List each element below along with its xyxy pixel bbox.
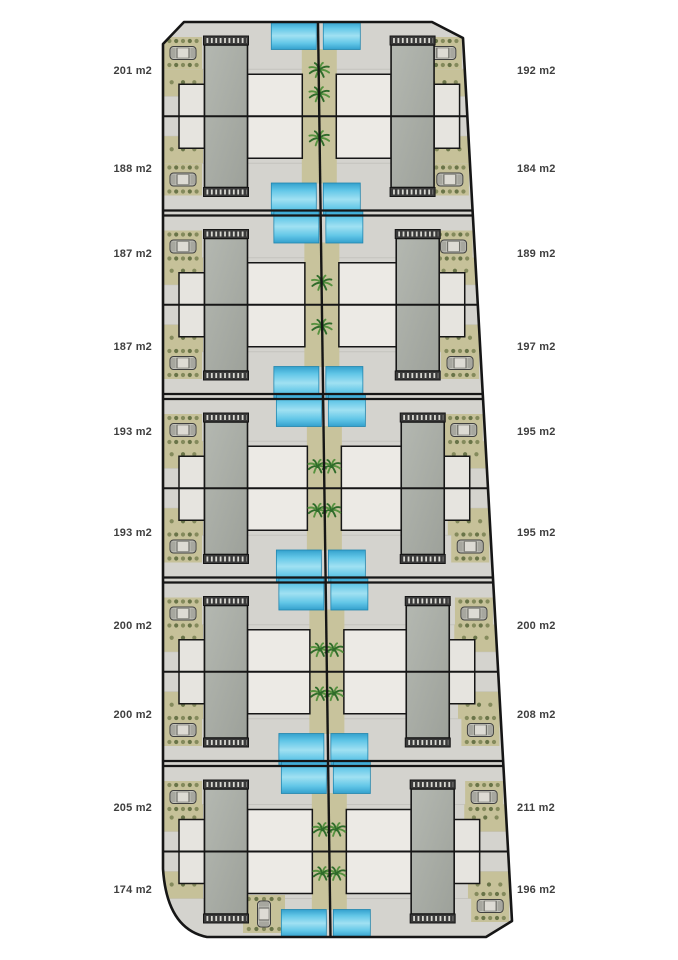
plant-tuft (455, 556, 459, 560)
plant-tuft (188, 556, 192, 560)
plant-tuft (195, 189, 199, 193)
plant-tuft (502, 892, 506, 896)
block-2 (150, 210, 525, 400)
plant-tuft (170, 815, 174, 819)
car-icon (170, 540, 196, 553)
car-icon (170, 173, 196, 186)
plant-tuft (451, 373, 455, 377)
parking-pad (164, 714, 202, 746)
area-label-left-9: 205 m2 (88, 801, 152, 815)
plant-tuft (455, 532, 459, 536)
plant-tuft (188, 165, 192, 169)
plant-tuft (167, 556, 171, 560)
car-icon (170, 424, 196, 437)
plant-tuft (485, 599, 489, 603)
plant-tuft (195, 556, 199, 560)
plant-tuft (188, 716, 192, 720)
plant-tuft (441, 189, 445, 193)
plant-tuft (188, 232, 192, 236)
plant-tuft (472, 373, 476, 377)
plant-tuft (167, 440, 171, 444)
area-label-right-8: 208 m2 (517, 708, 587, 722)
plant-tuft (170, 882, 174, 886)
plant-tuft (195, 532, 199, 536)
plant-tuft (195, 256, 199, 260)
plant-tuft (170, 519, 174, 523)
plant-tuft (167, 807, 171, 811)
plant-tuft (195, 599, 199, 603)
plant-tuft (475, 532, 479, 536)
plant-tuft (458, 349, 462, 353)
plant-tuft (174, 63, 178, 67)
plant-tuft (465, 599, 469, 603)
plant-tuft (485, 636, 489, 640)
plant-tuft (188, 740, 192, 744)
plant-tuft (262, 897, 266, 901)
plant-tuft (174, 807, 178, 811)
plant-tuft (181, 783, 185, 787)
plant-tuft (174, 349, 178, 353)
area-label-right-5: 195 m2 (517, 425, 587, 439)
plant-tuft (188, 189, 192, 193)
plant-tuft (167, 256, 171, 260)
plant-tuft (487, 882, 491, 886)
parking-pad (455, 598, 493, 630)
plant-tuft (195, 349, 199, 353)
car-icon (170, 607, 196, 620)
plant-tuft (474, 916, 478, 920)
plant-tuft (488, 892, 492, 896)
plant-tuft (485, 623, 489, 627)
car-icon (170, 240, 196, 253)
plant-tuft (496, 783, 500, 787)
plant-tuft (472, 716, 476, 720)
plant-tuft (247, 927, 251, 931)
plant-tuft (174, 556, 178, 560)
plant-tuft (195, 373, 199, 377)
plant-tuft (462, 440, 466, 444)
plant-tuft (472, 740, 476, 744)
plant-tuft (195, 63, 199, 67)
plant-tuft (174, 716, 178, 720)
plant-tuft (167, 416, 171, 420)
plant-tuft (482, 783, 486, 787)
parking-pad (445, 414, 483, 446)
plant-tuft (478, 740, 482, 744)
plant-tuft (472, 623, 476, 627)
plant-tuft (441, 63, 445, 67)
plant-tuft (494, 815, 498, 819)
parking-pad (431, 164, 469, 196)
plant-tuft (195, 39, 199, 43)
plant-tuft (482, 807, 486, 811)
plant-tuft (461, 189, 465, 193)
plant-tuft (167, 532, 171, 536)
area-label-left-10: 174 m2 (88, 883, 152, 897)
plant-tuft (188, 783, 192, 787)
plant-tuft (444, 349, 448, 353)
plant-tuft (441, 165, 445, 169)
area-label-right-7: 200 m2 (517, 619, 587, 633)
plant-tuft (458, 232, 462, 236)
area-label-right-6: 195 m2 (517, 526, 587, 540)
plant-tuft (482, 556, 486, 560)
area-label-right-3: 189 m2 (517, 247, 587, 261)
plant-tuft (174, 416, 178, 420)
plant-tuft (254, 927, 258, 931)
plant-tuft (170, 336, 174, 340)
plant-tuft (465, 716, 469, 720)
plant-tuft (455, 165, 459, 169)
area-label-left-7: 200 m2 (88, 619, 152, 633)
plant-tuft (485, 740, 489, 744)
plant-tuft (167, 783, 171, 787)
plant-tuft (181, 349, 185, 353)
plant-tuft (195, 165, 199, 169)
plant-tuft (188, 63, 192, 67)
plant-tuft (475, 783, 479, 787)
plant-tuft (458, 599, 462, 603)
plant-tuft (485, 716, 489, 720)
parking-pad (164, 531, 202, 563)
car-icon (170, 47, 196, 60)
site-plan-canvas: 201 m2192 m2188 m2184 m2187 m2189 m2187 … (0, 0, 678, 960)
plant-tuft (489, 783, 493, 787)
plant-tuft (195, 416, 199, 420)
site-plan-drawing (0, 0, 678, 960)
plant-tuft (475, 807, 479, 811)
area-label-left-6: 193 m2 (88, 526, 152, 540)
plant-tuft (167, 165, 171, 169)
parking-pad (461, 714, 499, 746)
plant-tuft (465, 740, 469, 744)
plant-tuft (454, 39, 458, 43)
plant-tuft (188, 39, 192, 43)
plant-tuft (468, 336, 472, 340)
plant-tuft (174, 599, 178, 603)
car-icon (471, 791, 497, 804)
plant-tuft (174, 189, 178, 193)
plant-tuft (448, 39, 452, 43)
plant-tuft (448, 165, 452, 169)
car-icon (258, 901, 271, 927)
plant-tuft (451, 349, 455, 353)
plant-tuft (451, 232, 455, 236)
plant-tuft (495, 892, 499, 896)
plant-tuft (475, 440, 479, 444)
area-label-right-1: 192 m2 (517, 64, 587, 78)
plant-tuft (270, 897, 274, 901)
parking-pad (164, 598, 202, 630)
parking-pad (243, 895, 285, 933)
plant-tuft (170, 703, 174, 707)
area-label-right-4: 197 m2 (517, 340, 587, 354)
plant-tuft (262, 927, 266, 931)
area-label-right-10: 196 m2 (517, 883, 587, 897)
plant-tuft (483, 815, 487, 819)
plant-tuft (195, 623, 199, 627)
block-3 (150, 394, 525, 584)
car-icon (441, 240, 467, 253)
plant-tuft (498, 882, 502, 886)
plant-tuft (492, 740, 496, 744)
plant-tuft (174, 373, 178, 377)
plant-tuft (461, 532, 465, 536)
plant-tuft (195, 232, 199, 236)
plant-tuft (445, 256, 449, 260)
plant-tuft (465, 373, 469, 377)
plant-tuft (195, 716, 199, 720)
plant-tuft (495, 916, 499, 920)
plant-tuft (468, 556, 472, 560)
plant-tuft (188, 532, 192, 536)
plant-tuft (181, 189, 185, 193)
plant-tuft (465, 232, 469, 236)
plant-tuft (167, 716, 171, 720)
plant-tuft (170, 636, 174, 640)
parking-pad (164, 231, 202, 263)
plant-tuft (479, 599, 483, 603)
plant-tuft (455, 189, 459, 193)
plant-tuft (455, 440, 459, 444)
plant-tuft (474, 452, 478, 456)
plant-tuft (472, 599, 476, 603)
plant-tuft (174, 740, 178, 744)
plant-tuft (188, 373, 192, 377)
parking-pad (164, 164, 202, 196)
area-label-left-4: 187 m2 (88, 340, 152, 354)
plant-tuft (188, 349, 192, 353)
car-icon (451, 424, 477, 437)
plant-tuft (479, 623, 483, 627)
plant-tuft (448, 440, 452, 444)
plant-tuft (188, 623, 192, 627)
plant-tuft (465, 349, 469, 353)
plant-tuft (481, 892, 485, 896)
plant-tuft (167, 189, 171, 193)
parking-pad (164, 414, 202, 446)
plant-tuft (254, 897, 258, 901)
car-icon (447, 357, 473, 370)
plant-tuft (195, 740, 199, 744)
plant-tuft (468, 440, 472, 444)
plant-tuft (167, 349, 171, 353)
plant-tuft (444, 373, 448, 377)
plant-tuft (482, 532, 486, 536)
plant-tuft (167, 63, 171, 67)
plant-tuft (181, 232, 185, 236)
plant-tuft (167, 599, 171, 603)
plant-tuft (188, 416, 192, 420)
plant-tuft (448, 63, 452, 67)
plant-tuft (489, 807, 493, 811)
plant-tuft (181, 740, 185, 744)
plant-tuft (174, 256, 178, 260)
area-label-left-5: 193 m2 (88, 425, 152, 439)
plant-tuft (270, 927, 274, 931)
plant-tuft (451, 256, 455, 260)
car-icon (437, 173, 463, 186)
plant-tuft (174, 39, 178, 43)
plant-tuft (195, 807, 199, 811)
area-label-left-2: 188 m2 (88, 162, 152, 176)
plant-tuft (468, 783, 472, 787)
plant-tuft (462, 416, 466, 420)
plant-tuft (188, 440, 192, 444)
plant-tuft (458, 256, 462, 260)
plant-tuft (181, 556, 185, 560)
pool (271, 22, 316, 50)
area-label-left-3: 187 m2 (88, 247, 152, 261)
parking-pad (164, 37, 202, 69)
plant-tuft (458, 373, 462, 377)
plant-tuft (170, 147, 174, 151)
plant-tuft (474, 892, 478, 896)
plant-tuft (488, 703, 492, 707)
pool (323, 22, 360, 50)
plant-tuft (277, 897, 281, 901)
plant-tuft (461, 556, 465, 560)
car-icon (170, 357, 196, 370)
car-icon (477, 900, 503, 913)
area-label-right-9: 211 m2 (517, 801, 587, 815)
parking-pad (451, 531, 489, 563)
plant-tuft (468, 532, 472, 536)
pool (281, 910, 326, 938)
plant-tuft (445, 232, 449, 236)
car-icon (457, 540, 483, 553)
plant-tuft (475, 556, 479, 560)
plant-tuft (181, 63, 185, 67)
plant-tuft (181, 716, 185, 720)
plant-tuft (448, 189, 452, 193)
plant-tuft (174, 532, 178, 536)
plant-tuft (468, 807, 472, 811)
plant-tuft (448, 416, 452, 420)
plant-tuft (167, 740, 171, 744)
plant-tuft (465, 256, 469, 260)
plant-tuft (488, 916, 492, 920)
plant-tuft (170, 452, 174, 456)
car-icon (170, 724, 196, 737)
plant-tuft (188, 807, 192, 811)
plant-tuft (174, 623, 178, 627)
plant-tuft (181, 39, 185, 43)
plant-tuft (502, 916, 506, 920)
plant-tuft (181, 440, 185, 444)
plant-tuft (195, 783, 199, 787)
parking-pad (471, 890, 509, 922)
plant-tuft (468, 416, 472, 420)
plant-tuft (195, 440, 199, 444)
plant-tuft (181, 599, 185, 603)
plant-tuft (181, 373, 185, 377)
plant-tuft (181, 256, 185, 260)
plant-tuft (181, 807, 185, 811)
plant-tuft (454, 63, 458, 67)
plant-tuft (465, 623, 469, 627)
plant-tuft (472, 349, 476, 353)
plant-tuft (181, 532, 185, 536)
plant-tuft (174, 440, 178, 444)
plant-tuft (475, 416, 479, 420)
plant-tuft (455, 416, 459, 420)
parking-pad (441, 347, 479, 379)
plant-tuft (492, 716, 496, 720)
plant-tuft (174, 783, 178, 787)
pool (333, 910, 370, 938)
plant-tuft (277, 927, 281, 931)
plant-tuft (481, 916, 485, 920)
plant-tuft (167, 623, 171, 627)
car-icon (467, 724, 493, 737)
plant-tuft (170, 80, 174, 84)
parking-pad (465, 781, 503, 813)
plant-tuft (478, 716, 482, 720)
plant-tuft (170, 269, 174, 273)
plant-tuft (181, 416, 185, 420)
parking-pad (164, 347, 202, 379)
car-icon (461, 607, 487, 620)
block-4 (150, 577, 525, 767)
plant-tuft (477, 703, 481, 707)
area-label-right-2: 184 m2 (517, 162, 587, 176)
plant-tuft (167, 373, 171, 377)
plant-tuft (461, 165, 465, 169)
plant-tuft (478, 519, 482, 523)
plant-tuft (458, 623, 462, 627)
area-label-left-1: 201 m2 (88, 64, 152, 78)
plant-tuft (167, 232, 171, 236)
plant-tuft (174, 165, 178, 169)
plant-tuft (181, 165, 185, 169)
plant-tuft (188, 256, 192, 260)
area-label-left-8: 200 m2 (88, 708, 152, 722)
parking-pad (164, 781, 202, 813)
plant-tuft (441, 39, 445, 43)
plant-tuft (496, 807, 500, 811)
car-icon (170, 791, 196, 804)
plant-tuft (181, 623, 185, 627)
plant-tuft (188, 599, 192, 603)
plant-tuft (174, 232, 178, 236)
